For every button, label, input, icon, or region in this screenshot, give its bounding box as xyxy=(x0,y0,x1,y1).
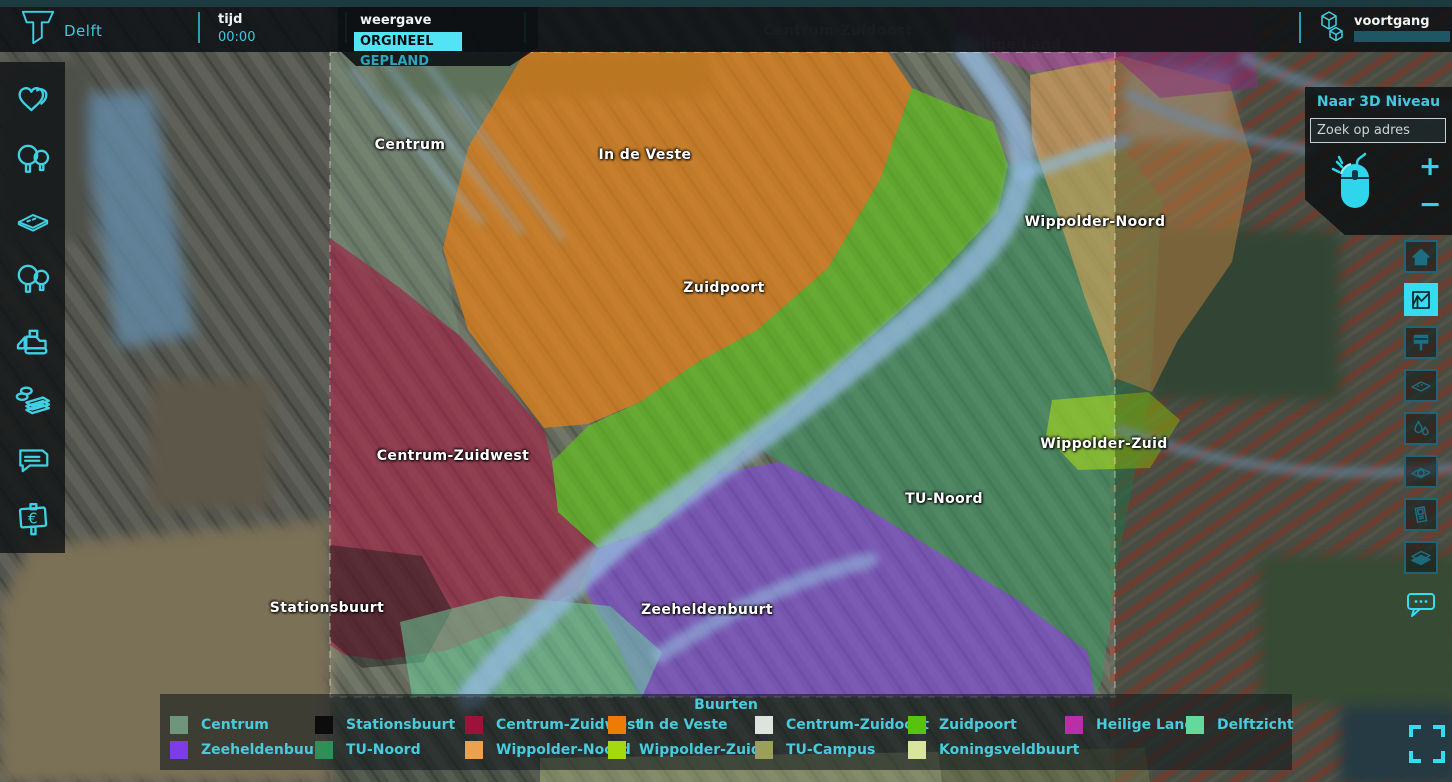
view-switcher: weergave ORGINEEL GEPLAND xyxy=(338,0,538,66)
signs-button[interactable] xyxy=(1404,326,1438,359)
fullscreen-button[interactable] xyxy=(1408,724,1446,764)
legend-item: Heilige Land xyxy=(1065,716,1194,734)
legend-swatch xyxy=(908,741,926,759)
legend-label: Wippolder-Zuid xyxy=(639,742,761,758)
address-search-input[interactable] xyxy=(1310,118,1446,143)
view-label: weergave xyxy=(360,13,538,28)
legend-swatch xyxy=(1065,716,1083,734)
zone-circle-icon xyxy=(1409,460,1433,484)
legend-swatch xyxy=(755,716,773,734)
top-strip xyxy=(0,0,1452,7)
left-toolbar: € xyxy=(0,62,65,553)
legend-item: Delftzicht xyxy=(1186,716,1294,734)
finances-button[interactable] xyxy=(9,376,57,423)
water-drop-icon xyxy=(1409,417,1433,441)
progress-blocks-icon xyxy=(1316,8,1348,42)
legend-item: Stationsbuurt xyxy=(315,716,455,734)
hearts-icon xyxy=(13,80,53,120)
satellite-map xyxy=(0,0,1452,782)
legend-swatch xyxy=(908,716,926,734)
construction-button[interactable] xyxy=(9,316,57,363)
project-title: Delft xyxy=(64,22,102,40)
header-divider xyxy=(1299,12,1301,43)
legend-swatch xyxy=(465,716,483,734)
time-label: tijd xyxy=(218,12,255,27)
progress-block: voortgang xyxy=(1316,8,1348,46)
zones-overlay-button[interactable] xyxy=(1404,455,1438,488)
legend-label: Zeeheldenbuurt xyxy=(201,742,327,758)
overlay-chart-button[interactable] xyxy=(1404,283,1438,316)
legend-swatch xyxy=(315,741,333,759)
map-tools-toolbar xyxy=(1404,240,1440,621)
quality-of-life-button[interactable] xyxy=(9,76,57,123)
to-3d-level-button[interactable]: Naar 3D Niveau xyxy=(1305,94,1452,110)
zoom-out-button[interactable]: − xyxy=(1413,191,1447,221)
legend-label: Delftzicht xyxy=(1217,717,1294,733)
legend-label: In de Veste xyxy=(639,717,728,733)
surface-tile-icon xyxy=(13,203,53,237)
legend-title: Buurten xyxy=(160,697,1292,713)
trees-button[interactable] xyxy=(9,256,57,303)
app-window: Centrum In de Veste Zuidpoort Wippolder-… xyxy=(0,0,1452,782)
legend-swatch xyxy=(755,741,773,759)
surfaces-button[interactable] xyxy=(9,196,57,243)
legend-item: Wippolder-Noord xyxy=(465,741,631,759)
legend-item: Centrum-Zuidoost xyxy=(755,716,929,734)
water-overlay-button[interactable] xyxy=(1404,412,1438,445)
euro-board-icon: € xyxy=(13,500,53,540)
legend-swatch xyxy=(608,741,626,759)
home-icon xyxy=(1409,245,1433,269)
legend-swatch xyxy=(465,741,483,759)
flat-layer-icon xyxy=(1409,374,1433,398)
progress-label: voortgang xyxy=(1354,14,1430,29)
legend-item: Centrum xyxy=(170,716,269,734)
trees-icon xyxy=(13,260,53,300)
messages-button[interactable] xyxy=(9,436,57,483)
info-panel-button[interactable] xyxy=(1404,498,1438,531)
legend-item: TU-Campus xyxy=(755,741,875,759)
layers-stack-icon xyxy=(1409,546,1433,570)
legend-item: Koningsveldbuurt xyxy=(908,741,1079,759)
legend-item: In de Veste xyxy=(608,716,728,734)
feedback-chat-button[interactable] xyxy=(1404,588,1438,621)
legend-label: Koningsveldbuurt xyxy=(939,742,1079,758)
legend-item: Wippolder-Zuid xyxy=(608,741,761,759)
view-option-origineel[interactable]: ORGINEEL xyxy=(354,32,462,51)
chart-icon xyxy=(1409,288,1433,312)
trees-icon xyxy=(13,140,53,180)
header-bar: Delft tijd 00:00 voortgang xyxy=(0,0,1452,52)
greenery-button[interactable] xyxy=(9,136,57,183)
time-block: tijd 00:00 xyxy=(218,12,255,45)
legend-label: Zuidpoort xyxy=(939,717,1017,733)
progress-bar xyxy=(1354,31,1450,42)
legend-panel: Buurten Centrum Stationsbuurt Centrum-Zu… xyxy=(160,694,1292,770)
subsidies-button[interactable]: € xyxy=(9,496,57,543)
home-view-button[interactable] xyxy=(1404,240,1438,273)
legend-label: TU-Campus xyxy=(786,742,875,758)
legend-label: Heilige Land xyxy=(1096,717,1194,733)
map-canvas[interactable]: Centrum In de Veste Zuidpoort Wippolder-… xyxy=(0,0,1452,782)
legend-swatch xyxy=(170,716,188,734)
legend-swatch xyxy=(170,741,188,759)
legend-swatch xyxy=(315,716,333,734)
legend-label: Stationsbuurt xyxy=(346,717,455,733)
zoom-in-button[interactable]: + xyxy=(1413,153,1447,183)
navigation-panel: Naar 3D Niveau + − xyxy=(1305,87,1452,235)
fullscreen-icon xyxy=(1408,724,1446,764)
legend-label: Centrum xyxy=(201,717,269,733)
mouse-icon xyxy=(1327,150,1383,212)
tygron-logo xyxy=(17,9,59,45)
svg-text:€: € xyxy=(28,509,38,527)
legend-swatch xyxy=(608,716,626,734)
legend-label: TU-Noord xyxy=(346,742,421,758)
legend-item: TU-Noord xyxy=(315,741,421,759)
legend-item: Zuidpoort xyxy=(908,716,1017,734)
header-divider xyxy=(198,12,200,43)
chat-dots-icon xyxy=(1405,590,1437,620)
bulldozer-icon xyxy=(13,320,53,360)
money-icon xyxy=(13,380,53,420)
time-value: 00:00 xyxy=(218,30,255,45)
legend-swatch xyxy=(1186,716,1204,734)
chat-icon xyxy=(13,441,53,479)
surface-layer-button[interactable] xyxy=(1404,369,1438,402)
legend-item: Zeeheldenbuurt xyxy=(170,741,327,759)
panel-card-icon xyxy=(1409,503,1433,527)
billboard-icon xyxy=(1409,331,1433,355)
layers-button[interactable] xyxy=(1404,541,1438,574)
